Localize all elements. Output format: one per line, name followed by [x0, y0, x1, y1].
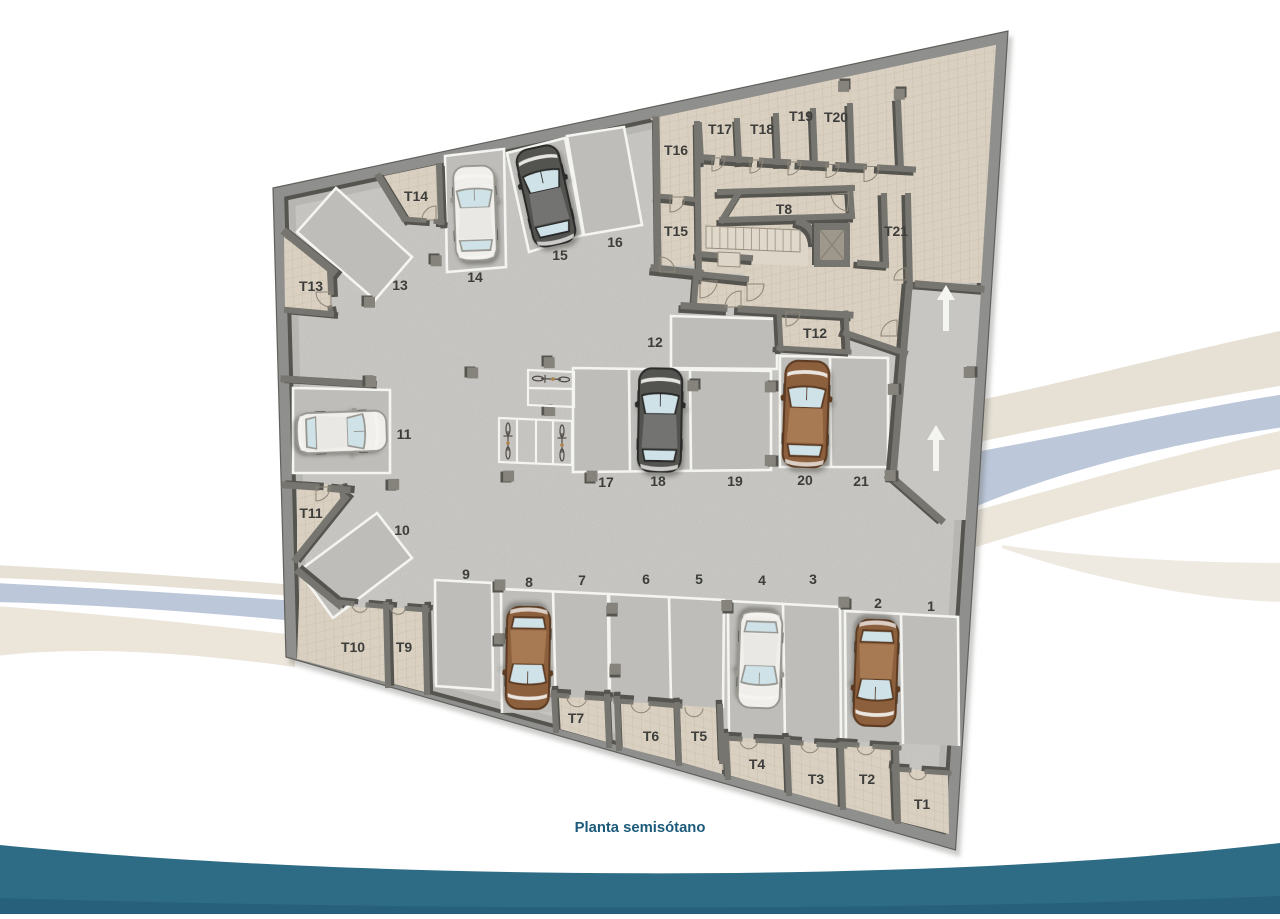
svg-text:20: 20	[797, 472, 813, 488]
svg-text:2: 2	[874, 595, 882, 611]
svg-text:T4: T4	[749, 756, 766, 772]
svg-text:T21: T21	[884, 223, 908, 239]
svg-text:15: 15	[552, 247, 568, 263]
svg-text:16: 16	[607, 234, 623, 250]
svg-text:T10: T10	[341, 639, 365, 655]
svg-text:5: 5	[695, 571, 703, 587]
svg-text:7: 7	[578, 572, 586, 588]
svg-text:21: 21	[853, 473, 869, 489]
svg-text:T18: T18	[750, 121, 774, 137]
svg-text:T15: T15	[664, 223, 688, 239]
svg-text:14: 14	[467, 269, 483, 285]
svg-text:11: 11	[397, 426, 412, 442]
svg-text:9: 9	[462, 566, 470, 582]
svg-text:10: 10	[394, 522, 410, 538]
svg-text:T11: T11	[299, 505, 323, 521]
svg-text:T2: T2	[859, 771, 876, 787]
svg-text:19: 19	[727, 473, 743, 489]
svg-text:T7: T7	[568, 710, 585, 726]
svg-text:3: 3	[809, 571, 817, 587]
svg-text:T20: T20	[824, 109, 848, 125]
svg-text:T3: T3	[808, 771, 825, 787]
svg-text:1: 1	[927, 598, 935, 614]
svg-text:18: 18	[650, 473, 666, 489]
svg-text:8: 8	[525, 574, 533, 590]
svg-text:Planta semisótano: Planta semisótano	[575, 820, 706, 836]
svg-text:T17: T17	[708, 121, 732, 137]
svg-text:T16: T16	[664, 142, 688, 158]
svg-text:T1: T1	[914, 796, 931, 812]
svg-text:4: 4	[758, 572, 766, 588]
svg-text:T13: T13	[299, 278, 323, 294]
svg-text:T9: T9	[396, 639, 413, 655]
svg-text:13: 13	[392, 277, 408, 293]
svg-text:T12: T12	[803, 325, 827, 341]
svg-text:17: 17	[598, 474, 614, 490]
svg-text:6: 6	[642, 571, 650, 587]
svg-text:12: 12	[647, 334, 663, 350]
svg-text:T14: T14	[404, 188, 428, 204]
svg-text:T8: T8	[776, 201, 793, 217]
svg-text:T19: T19	[789, 108, 813, 124]
svg-text:T5: T5	[691, 728, 708, 744]
svg-text:T6: T6	[643, 728, 660, 744]
